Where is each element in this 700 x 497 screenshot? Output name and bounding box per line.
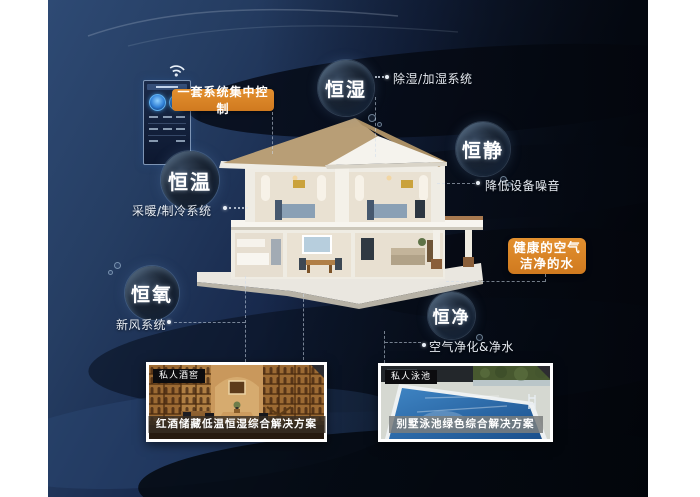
healthy-air-water-badge: 健康的空气 洁净的水	[508, 238, 586, 274]
central-control-badge: 一套系统集中控制	[172, 89, 274, 111]
connector-badge2-down	[545, 274, 546, 282]
dark-canvas: 一套系统集中控制 恒湿 除湿/加湿系统 恒静 降低设备噪音 恒温 采暖/制冷系统…	[48, 0, 648, 497]
connector-humidity-roof	[375, 97, 376, 157]
connector-fresh-air-down	[245, 276, 246, 362]
corner-fold-icon	[537, 366, 550, 379]
annotation-humidity-system: 除湿/加湿系统	[393, 70, 473, 87]
bubble-constant-quiet: 恒静	[456, 122, 510, 176]
annotation-hvac-system: 采暖/制冷系统	[132, 202, 212, 219]
house-cutaway-illustration	[175, 112, 491, 310]
connector-quiet	[437, 183, 475, 184]
annotation-fresh-air-system: 新风系统	[116, 316, 166, 333]
connector-badge2-house	[446, 281, 545, 282]
wifi-icon	[164, 58, 191, 81]
connector-fresh-air	[174, 322, 245, 323]
badge-line1: 健康的空气	[513, 240, 581, 256]
badge-line2: 洁净的水	[520, 256, 574, 272]
infographic-page: 一套系统集中控制 恒湿 除湿/加湿系统 恒静 降低设备噪音 恒温 采暖/制冷系统…	[0, 0, 700, 497]
connector-purity	[385, 342, 421, 343]
connector-house-pool	[384, 331, 385, 363]
corner-fold-icon	[311, 365, 324, 378]
pool-photo: 私人泳池 别墅泳池绿色综合解决方案	[378, 363, 553, 442]
wine-cellar-photo: 私人酒窖 红酒储藏低温恒湿综合解决方案	[146, 362, 327, 442]
bubble-constant-temperature: 恒温	[161, 151, 219, 209]
photo-tag-pool: 私人泳池	[385, 370, 437, 384]
photo-caption-pool: 别墅泳池绿色综合解决方案	[389, 416, 543, 433]
connector-badge-roof	[272, 112, 273, 154]
connector-house-winecellar	[303, 294, 304, 360]
swirl-decoration	[78, 0, 478, 52]
connector-humidity	[375, 76, 384, 78]
photo-caption-wine: 红酒储藏低温恒湿综合解决方案	[148, 416, 325, 433]
annotation-noise-reduction: 降低设备噪音	[485, 177, 560, 194]
connector-hvac	[229, 207, 248, 209]
bubble-constant-oxygen: 恒氧	[125, 266, 179, 320]
bubble-constant-purity: 恒净	[428, 292, 475, 339]
annotation-purification: 空气净化&净水	[429, 338, 514, 355]
dial-left	[149, 94, 166, 111]
photo-tag-wine: 私人酒窖	[153, 369, 205, 383]
bubble-constant-humidity: 恒湿	[318, 60, 374, 116]
